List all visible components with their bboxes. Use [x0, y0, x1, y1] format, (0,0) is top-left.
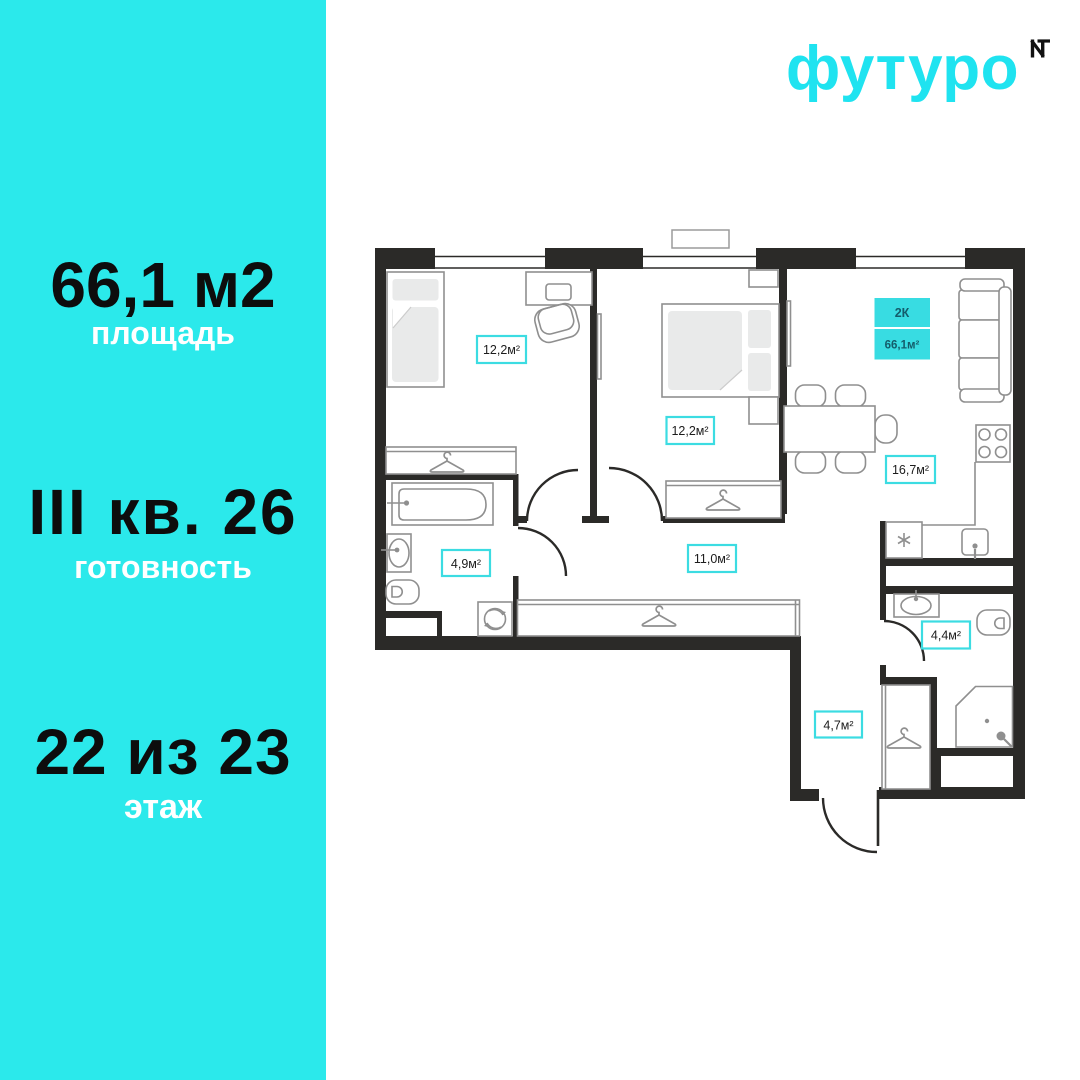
svg-text:12,2м²: 12,2м²: [671, 424, 708, 438]
svg-text:4,7м²: 4,7м²: [823, 719, 853, 733]
svg-text:4,9м²: 4,9м²: [451, 557, 481, 571]
svg-text:4,4м²: 4,4м²: [931, 629, 961, 643]
svg-text:11,0м²: 11,0м²: [694, 552, 730, 566]
svg-text:2К: 2К: [895, 306, 910, 320]
svg-text:66,1м²: 66,1м²: [885, 340, 920, 352]
svg-text:12,2м²: 12,2м²: [483, 343, 520, 357]
svg-text:16,7м²: 16,7м²: [892, 463, 929, 477]
